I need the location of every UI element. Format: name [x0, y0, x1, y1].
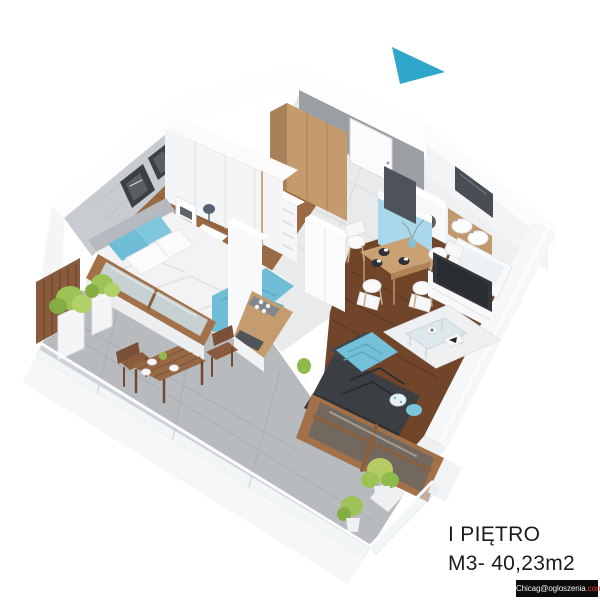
hob-burner-icon [255, 305, 259, 309]
corridor-plant-foliage [297, 358, 311, 374]
area-label: M3- 40,23m2 [448, 549, 575, 578]
floor-label: I PIĘTRO [448, 520, 575, 549]
planter-foliage [104, 283, 120, 297]
watermark-site: Chicag@ogloszenia [516, 584, 586, 593]
floorplan-render: I PIĘTRO M3- 40,23m2 Chicag@ogloszenia.c… [0, 0, 600, 600]
outdoor-plate [142, 369, 151, 375]
hob-burner-icon [259, 300, 263, 304]
watermark-tld: .com [586, 584, 600, 593]
couch-pillow-pattern [390, 394, 406, 406]
decor-bowl-dot [431, 329, 434, 332]
railing-plant-pot [374, 486, 390, 502]
planter-foliage [72, 295, 92, 313]
plate-cup [404, 257, 408, 260]
faucet-dot [455, 219, 458, 222]
outdoor-plate [170, 365, 179, 371]
plan-title-block: I PIĘTRO M3- 40,23m2 [448, 520, 575, 578]
plate-cup [377, 259, 381, 262]
dining-chair-seat [363, 280, 381, 293]
floorplan-svg [0, 0, 600, 600]
lamp-shade-icon [203, 204, 215, 214]
railing-plant-pot [346, 518, 360, 532]
railing-plant-foliage [361, 472, 379, 488]
railing-plant-foliage [381, 472, 399, 488]
outdoor-plate [148, 359, 157, 365]
table-plant-foliage [159, 352, 167, 360]
watermark: Chicag@ogloszenia.com [516, 580, 598, 597]
couch-pillow-teal [406, 404, 422, 416]
direction-arrow-icon [392, 47, 445, 84]
pillow-pattern-dot [394, 397, 396, 399]
door-handle [387, 162, 390, 165]
corridor-plant-pot [300, 374, 308, 384]
planter-foliage [85, 284, 99, 298]
blue-vase [409, 238, 416, 248]
hob-burner-icon [266, 304, 270, 308]
faucet-dot [471, 231, 474, 234]
plate-cup [384, 248, 388, 251]
planter-foliage [49, 298, 67, 314]
pillow-pattern-dot [400, 401, 402, 403]
hob-burner-icon [262, 309, 266, 313]
